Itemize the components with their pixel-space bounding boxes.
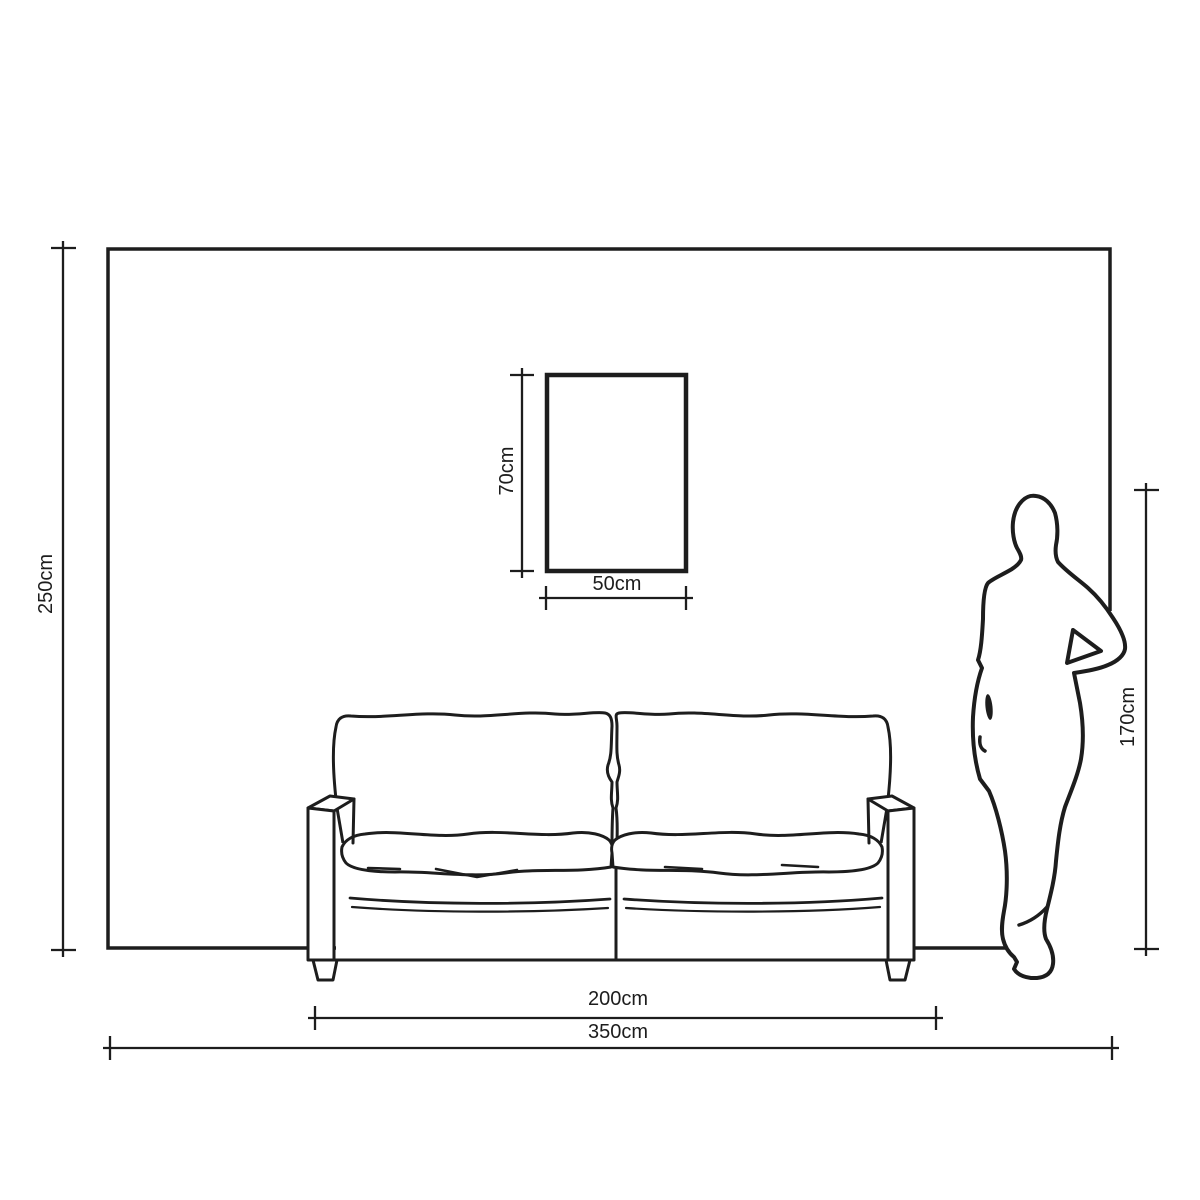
sofa-seat-cushion-right	[612, 832, 883, 874]
sofa-foot-right	[886, 960, 910, 980]
person-outline	[973, 496, 1125, 978]
sofa-arm-right-inner-edge	[868, 799, 869, 843]
sofa-foot-left	[313, 960, 337, 980]
person-height-label: 170cm	[1118, 687, 1138, 747]
artwork-width-label: 50cm	[593, 574, 642, 594]
sofa-width-label: 200cm	[588, 989, 648, 1009]
sofa-arm-right-front	[888, 808, 914, 960]
person-silhouette	[973, 496, 1125, 978]
sofa-arm-left-front	[308, 808, 334, 960]
sofa-arm-left-inner-edge	[353, 799, 354, 843]
wall-width-label: 350cm	[588, 1022, 648, 1042]
diagram-linework	[0, 0, 1200, 1200]
sofa-back-cushion-left	[333, 713, 613, 849]
artwork-height-label: 70cm	[497, 447, 517, 496]
sofa-back-cushion-right	[616, 713, 891, 849]
size-guide-diagram: 250cm 70cm 50cm 170cm 200cm 350cm	[0, 0, 1200, 1200]
sofa-illustration	[308, 713, 914, 980]
sofa-cushion-crease	[368, 868, 400, 869]
wall-height-label: 250cm	[36, 554, 56, 614]
artwork-frame	[547, 375, 686, 571]
